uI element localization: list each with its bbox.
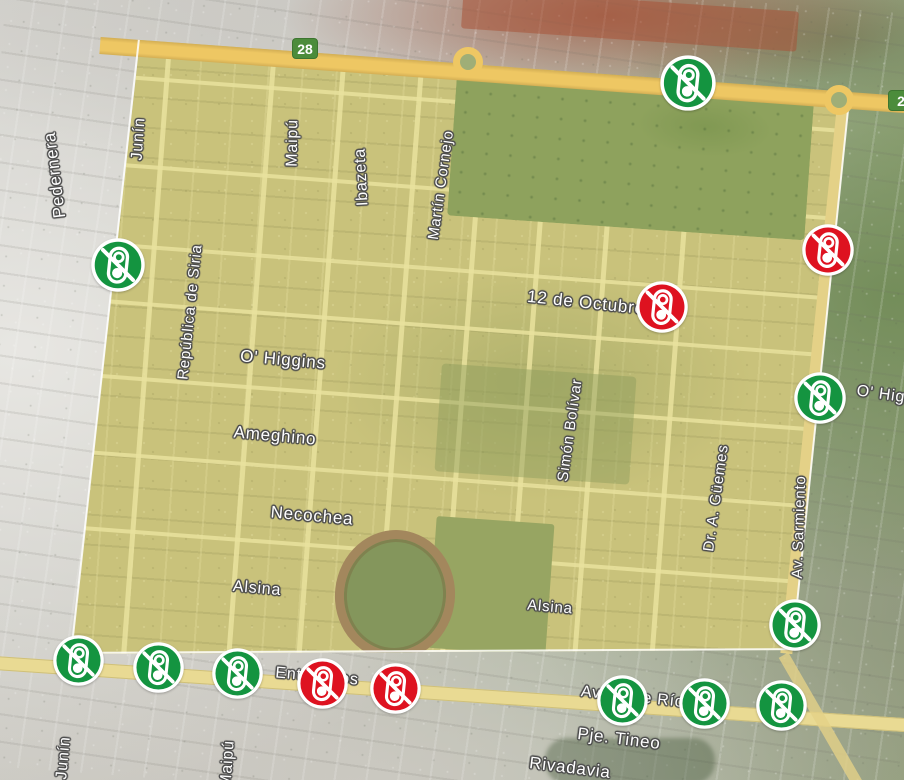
traffic-light-ban-marker-red[interactable] <box>801 223 855 277</box>
traffic-light-off-icon <box>596 674 649 727</box>
traffic-light-off-icon <box>132 641 185 694</box>
traffic-light-ban-marker-green[interactable] <box>678 677 731 730</box>
traffic-light-off-icon <box>211 647 264 700</box>
traffic-light-ban-marker-green[interactable] <box>132 641 185 694</box>
traffic-light-ban-marker-red[interactable] <box>635 280 689 334</box>
traffic-light-ban-marker-green[interactable] <box>211 647 264 700</box>
traffic-light-off-icon <box>768 598 822 652</box>
traffic-light-ban-marker-green[interactable] <box>755 679 808 732</box>
traffic-light-ban-marker-green[interactable] <box>659 54 717 112</box>
traffic-light-ban-marker-green[interactable] <box>793 371 847 425</box>
traffic-light-ban-marker-red[interactable] <box>369 662 422 715</box>
traffic-light-ban-marker-red[interactable] <box>296 657 349 710</box>
traffic-light-off-icon <box>659 54 717 112</box>
traffic-light-off-icon <box>52 634 105 687</box>
traffic-light-off-icon <box>801 223 855 277</box>
traffic-light-ban-marker-green[interactable] <box>768 598 822 652</box>
traffic-light-off-icon <box>678 677 731 730</box>
traffic-light-ban-marker-green[interactable] <box>90 237 146 293</box>
traffic-light-off-icon <box>793 371 847 425</box>
traffic-light-off-icon <box>296 657 349 710</box>
traffic-light-off-icon <box>369 662 422 715</box>
traffic-light-off-icon <box>755 679 808 732</box>
markers-layer <box>0 0 904 780</box>
traffic-light-off-icon <box>635 280 689 334</box>
traffic-light-ban-marker-green[interactable] <box>596 674 649 727</box>
map-canvas[interactable]: 282 PederneraJunínMaipúIbazetaMartín Cor… <box>0 0 904 780</box>
traffic-light-off-icon <box>90 237 146 293</box>
traffic-light-ban-marker-green[interactable] <box>52 634 105 687</box>
